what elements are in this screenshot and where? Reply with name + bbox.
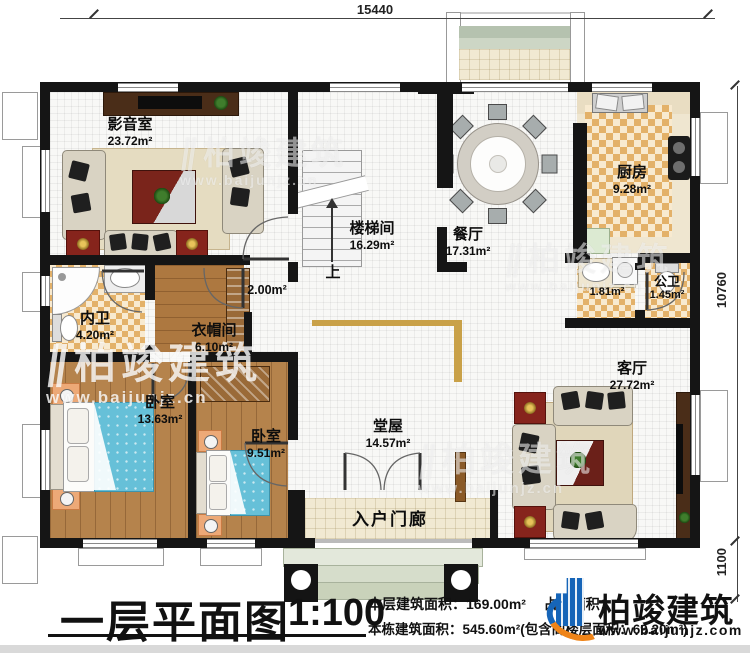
up-text: 上: [325, 264, 340, 281]
room-area: 27.72m²: [578, 378, 686, 392]
brand-url: www.baijunjz.com: [598, 622, 743, 638]
room-name: 厨房: [582, 164, 682, 182]
door-arc: [102, 271, 142, 312]
room-label-main-hall: 堂屋 14.57m²: [336, 418, 440, 450]
floor-plan: 15440 10760 1100: [0, 0, 750, 653]
right-dimension-label: 10760: [714, 272, 729, 308]
room-name: 影音室: [70, 116, 190, 134]
top-dimension-label: 15440: [330, 2, 420, 17]
door-arc: [345, 453, 381, 490]
room-label-bedroom2: 卧室 9.51m²: [212, 428, 320, 460]
right-dimension-line: [737, 86, 738, 544]
room-label-kitchen: 厨房 9.28m²: [582, 164, 682, 196]
top-dimension-line: [60, 18, 715, 19]
room-area: 9.28m²: [582, 182, 682, 196]
room-area: 13.63m²: [105, 412, 215, 426]
watermark-brand-text: 柏竣建筑: [528, 243, 672, 275]
watermark-url: www.baijunjz.cn: [180, 173, 347, 187]
floor-area-label: 本层建筑面积：: [368, 596, 466, 612]
room-area: 1.81m²: [580, 286, 634, 299]
room-area: 14.57m²: [336, 436, 440, 450]
room-label-cloakroom: 衣帽间 6.10m²: [162, 322, 266, 354]
room-label-stairwell: 楼梯间 16.29m²: [322, 220, 422, 252]
room-name: 卧室: [212, 428, 320, 446]
room-area: 9.51m²: [212, 446, 320, 460]
room-label-dining: 餐厅 17.31m²: [418, 226, 518, 258]
room-area: 4.20m²: [55, 328, 135, 342]
room-label-private-wc: 内卫 4.20m²: [55, 310, 135, 342]
watermark-logo-icon: ∥: [43, 342, 71, 386]
room-area: 6.10m²: [162, 340, 266, 354]
room-area: 23.72m²: [70, 134, 190, 148]
watermark: ∥ 柏竣建筑 www.baijunjz.cn: [180, 136, 347, 187]
room-name: 餐厅: [418, 226, 518, 244]
room-name: 衣帽间: [162, 322, 266, 340]
room-name: 堂屋: [336, 418, 440, 436]
room-label-living: 客厅 27.72m²: [578, 360, 686, 392]
steps-dimension-label: 1100: [714, 548, 729, 576]
watermark-url: www.baijunjz.cn: [418, 481, 594, 496]
room-area: 1.45m²: [638, 289, 696, 302]
room-area: 17.31m²: [418, 244, 518, 258]
room-label-public-wc: 公卫 1.45m²: [638, 274, 696, 302]
floor-area-value: 169.00m²: [466, 596, 526, 612]
room-area: 16.29m²: [322, 238, 422, 252]
room-label-hallway: 2.00m²: [232, 283, 302, 298]
stair-up-label: 上: [318, 264, 348, 282]
door-arc: [243, 217, 288, 259]
room-label-media: 影音室 23.72m²: [70, 116, 190, 148]
room-name: 内卫: [55, 310, 135, 328]
title-underline: [48, 634, 366, 637]
door-arc: [384, 453, 420, 490]
room-label-washstand: 1.81m²: [580, 286, 634, 299]
watermark-brand-text: 柏竣建筑: [442, 443, 594, 477]
watermark-brand-text: 柏竣建筑: [203, 137, 347, 169]
room-area: 2.00m²: [232, 283, 302, 298]
room-name: 客厅: [578, 360, 686, 378]
room-name: 公卫: [638, 274, 696, 289]
room-label-entry-porch: 入户门廊: [325, 510, 455, 530]
room-label-bedroom1: 卧室 13.63m²: [105, 394, 215, 426]
watermark: ∥ 柏竣建筑 www.baijunjz.cn: [418, 442, 594, 496]
brand-logo-icon: [548, 578, 596, 640]
room-name: 卧室: [105, 394, 215, 412]
room-name: 入户门廊: [352, 510, 428, 529]
room-name: 楼梯间: [322, 220, 422, 238]
drawing-title: 一层平面图: [60, 586, 290, 650]
